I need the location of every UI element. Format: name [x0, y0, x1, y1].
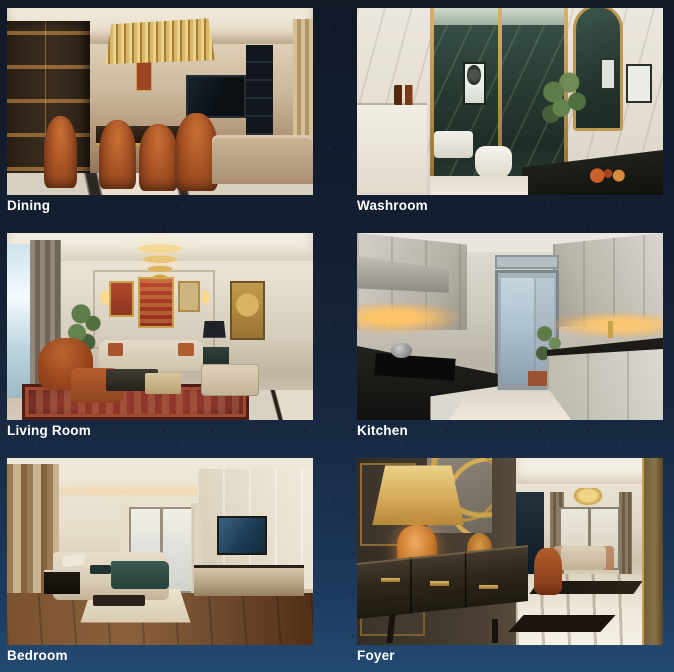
living-cushion-shape: [178, 343, 193, 356]
foyer-drawer-handle-shape: [381, 578, 399, 582]
living-ottoman-shape: [201, 364, 259, 396]
gallery-page: Dining Washroom: [0, 0, 674, 672]
dining-wall-art-shape: [137, 60, 151, 90]
photo-caption-living-room: Living Room: [7, 423, 313, 438]
washroom-bottles-shape: [590, 163, 627, 184]
living-side-table-shape: [145, 373, 182, 394]
kitchen-faucet-shape: [608, 321, 613, 338]
kitchen-transom-window-shape: [495, 255, 559, 268]
foyer-sofa-shape: [553, 546, 614, 570]
living-art-frame-shape: [180, 283, 198, 309]
foyer-drawer-handle-shape: [479, 585, 497, 589]
living-table-lamp-shape: [203, 321, 226, 338]
gallery-card-living-room: Living Room: [7, 233, 313, 438]
foyer-drawer-handle-shape: [430, 581, 448, 585]
photo-caption-bedroom: Bedroom: [7, 648, 313, 663]
gallery-card-dining: Dining: [7, 8, 313, 213]
photo-bedroom[interactable]: [7, 458, 313, 645]
living-gold-art-shape: [232, 283, 263, 337]
living-chandelier-shape: [120, 239, 200, 284]
dining-tv-shape: [186, 75, 246, 118]
living-sconce-shape: [201, 289, 210, 306]
photo-gallery-grid: Dining Washroom: [0, 0, 674, 663]
foyer-lamp-shade-shape: [372, 465, 464, 525]
foyer-chandelier-shape: [571, 488, 605, 507]
foyer-curtain-shape: [619, 492, 633, 586]
dining-sofa-shape: [212, 135, 313, 184]
washroom-ledge-shape: [357, 105, 427, 195]
dining-chair-shape: [139, 124, 179, 191]
foyer-accent-chair-shape: [534, 548, 562, 595]
washroom-bathtub-shape: [434, 131, 474, 157]
living-art-frame-shape: [111, 283, 132, 315]
washroom-window-shape: [626, 64, 652, 103]
gallery-card-washroom: Washroom: [357, 8, 663, 213]
living-cushion-shape: [108, 343, 123, 356]
bedroom-throw-blanket-shape: [111, 561, 169, 589]
photo-caption-kitchen: Kitchen: [357, 423, 663, 438]
bedroom-nightstand-shape: [44, 570, 81, 594]
photo-washroom[interactable]: [357, 8, 663, 195]
kitchen-door-glass-shape: [501, 278, 535, 383]
washroom-floor-shape: [430, 176, 528, 195]
bedroom-bench-shape: [93, 595, 145, 606]
dining-chair-shape: [44, 116, 78, 187]
washroom-toilet-shape: [475, 146, 512, 180]
bedroom-pillow-shape: [90, 565, 111, 574]
washroom-window-shape: [463, 62, 486, 105]
gallery-card-foyer: Foyer: [357, 458, 663, 663]
photo-caption-washroom: Washroom: [357, 198, 663, 213]
gallery-card-kitchen: Kitchen: [357, 233, 663, 438]
washroom-plant-shape: [538, 70, 590, 134]
living-floor-shape: [249, 390, 313, 420]
foyer-floor-inlay-shape: [509, 615, 616, 632]
washroom-gold-frame-shape: [430, 8, 434, 195]
photo-living-room[interactable]: [7, 233, 313, 420]
foyer-gold-panel-shape: [642, 458, 663, 645]
kitchen-lower-cabinets-shape: [547, 349, 663, 420]
photo-dining[interactable]: [7, 8, 313, 195]
dining-chair-shape: [99, 120, 136, 189]
photo-kitchen[interactable]: [357, 233, 663, 420]
gallery-card-bedroom: Bedroom: [7, 458, 313, 663]
bedroom-dresser-shape: [194, 565, 304, 597]
photo-caption-dining: Dining: [7, 198, 313, 213]
photo-caption-foyer: Foyer: [357, 648, 663, 663]
foyer-console-leg-shape: [492, 619, 498, 643]
washroom-bottles-shape: [394, 85, 415, 106]
living-art-frame-shape: [140, 279, 172, 326]
bedroom-tv-shape: [217, 516, 267, 555]
kitchen-under-cabinet-light-shape: [357, 304, 461, 334]
photo-foyer[interactable]: [357, 458, 663, 645]
